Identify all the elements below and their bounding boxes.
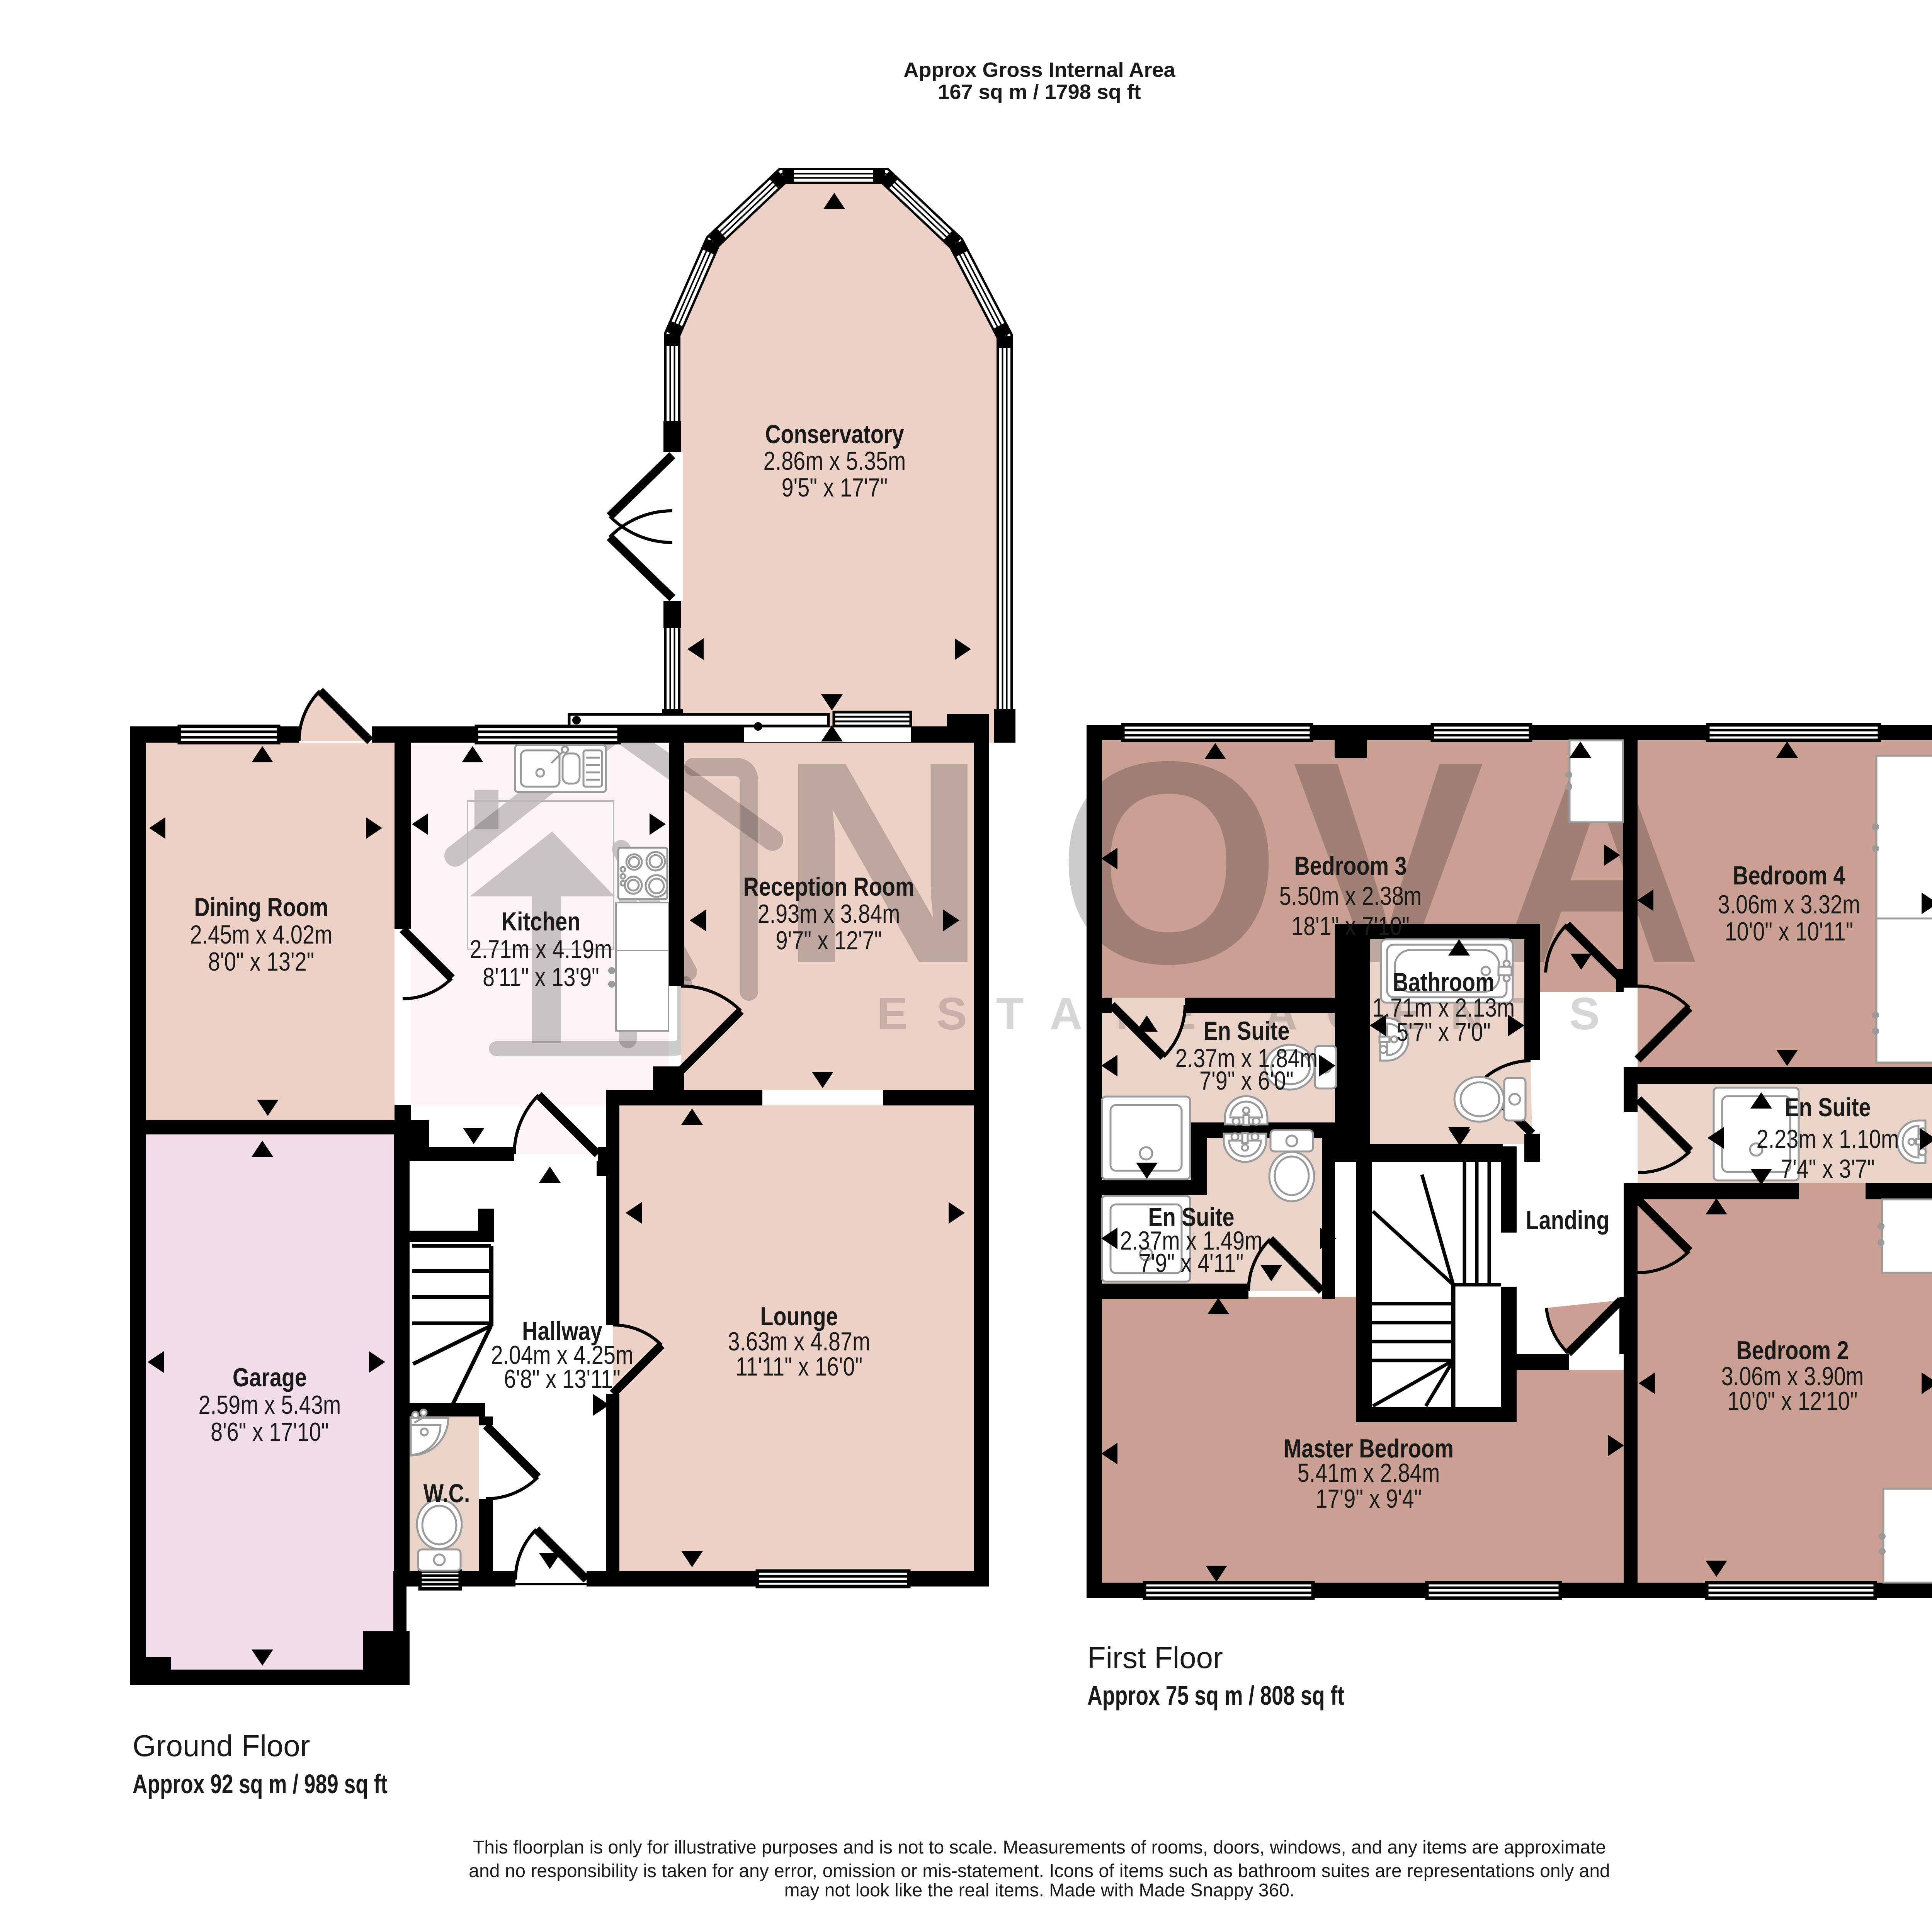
svg-text:Landing: Landing — [1526, 1206, 1610, 1235]
svg-text:Approx 75 sq m / 808 sq ft: Approx 75 sq m / 808 sq ft — [1087, 1680, 1344, 1711]
svg-text:and no responsibility is taken: and no responsibility is taken for any e… — [469, 1861, 1610, 1881]
svg-text:Kitchen: Kitchen — [502, 907, 580, 936]
svg-text:First Floor: First Floor — [1087, 1641, 1223, 1675]
svg-text:18'1" x 7'10": 18'1" x 7'10" — [1291, 912, 1410, 941]
svg-text:3.06m x 3.32m: 3.06m x 3.32m — [1718, 890, 1861, 919]
svg-text:5'7" x 7'0": 5'7" x 7'0" — [1396, 1018, 1491, 1047]
svg-text:6'8" x 13'11": 6'8" x 13'11" — [504, 1365, 621, 1394]
svg-text:Approx Gross Internal Area: Approx Gross Internal Area — [903, 58, 1175, 82]
svg-text:2.86m x 5.35m: 2.86m x 5.35m — [764, 447, 906, 476]
svg-text:9'7" x 12'7": 9'7" x 12'7" — [776, 926, 882, 955]
svg-text:8'0" x 13'2": 8'0" x 13'2" — [208, 947, 315, 976]
svg-text:may not look like the real ite: may not look like the real items. Made w… — [784, 1880, 1295, 1901]
svg-text:Reception Room: Reception Room — [743, 872, 915, 901]
svg-text:Ground Floor: Ground Floor — [133, 1729, 310, 1763]
svg-text:2.71m x 4.19m: 2.71m x 4.19m — [470, 935, 612, 964]
svg-text:Bedroom 2: Bedroom 2 — [1736, 1336, 1849, 1365]
svg-text:2.93m x 3.84m: 2.93m x 3.84m — [758, 900, 900, 928]
svg-text:7'9" x 4'11": 7'9" x 4'11" — [1139, 1249, 1244, 1278]
svg-text:Dining Room: Dining Room — [194, 893, 328, 922]
svg-text:Garage: Garage — [233, 1363, 307, 1392]
svg-text:2.23m x 1.10m: 2.23m x 1.10m — [1757, 1125, 1899, 1154]
svg-text:10'0" x 10'11": 10'0" x 10'11" — [1725, 917, 1854, 946]
svg-text:2.59m x 5.43m: 2.59m x 5.43m — [199, 1391, 341, 1420]
svg-text:10'0" x 12'10": 10'0" x 12'10" — [1728, 1387, 1858, 1416]
svg-text:7'9" x 6'0": 7'9" x 6'0" — [1199, 1066, 1294, 1095]
svg-text:Bedroom 3: Bedroom 3 — [1294, 852, 1406, 881]
svg-text:9'5" x 17'7": 9'5" x 17'7" — [782, 473, 888, 502]
svg-text:167 sq m / 1798 sq ft: 167 sq m / 1798 sq ft — [938, 80, 1141, 104]
svg-text:W.C.: W.C. — [423, 1479, 470, 1508]
svg-text:En Suite: En Suite — [1203, 1017, 1289, 1046]
svg-text:Bathroom: Bathroom — [1393, 968, 1494, 997]
svg-text:8'11" x 13'9": 8'11" x 13'9" — [483, 963, 599, 992]
svg-text:5.50m x 2.38m: 5.50m x 2.38m — [1279, 882, 1422, 911]
svg-text:7'4" x 3'7": 7'4" x 3'7" — [1781, 1155, 1875, 1184]
svg-text:17'9" x 9'4": 17'9" x 9'4" — [1316, 1484, 1422, 1513]
svg-text:Bedroom 4: Bedroom 4 — [1733, 861, 1845, 890]
svg-text:8'6" x 17'10": 8'6" x 17'10" — [211, 1418, 329, 1447]
svg-text:This floorplan is only for ill: This floorplan is only for illustrative … — [473, 1837, 1606, 1858]
svg-text:En Suite: En Suite — [1784, 1093, 1871, 1122]
svg-text:Approx 92 sq m / 989 sq ft: Approx 92 sq m / 989 sq ft — [133, 1769, 388, 1799]
svg-text:5.41m x 2.84m: 5.41m x 2.84m — [1298, 1459, 1440, 1488]
svg-text:N: N — [779, 702, 987, 1023]
svg-text:Conservatory: Conservatory — [765, 420, 904, 449]
svg-text:11'11" x 16'0": 11'11" x 16'0" — [736, 1352, 862, 1381]
svg-text:2.45m x 4.02m: 2.45m x 4.02m — [190, 920, 333, 949]
